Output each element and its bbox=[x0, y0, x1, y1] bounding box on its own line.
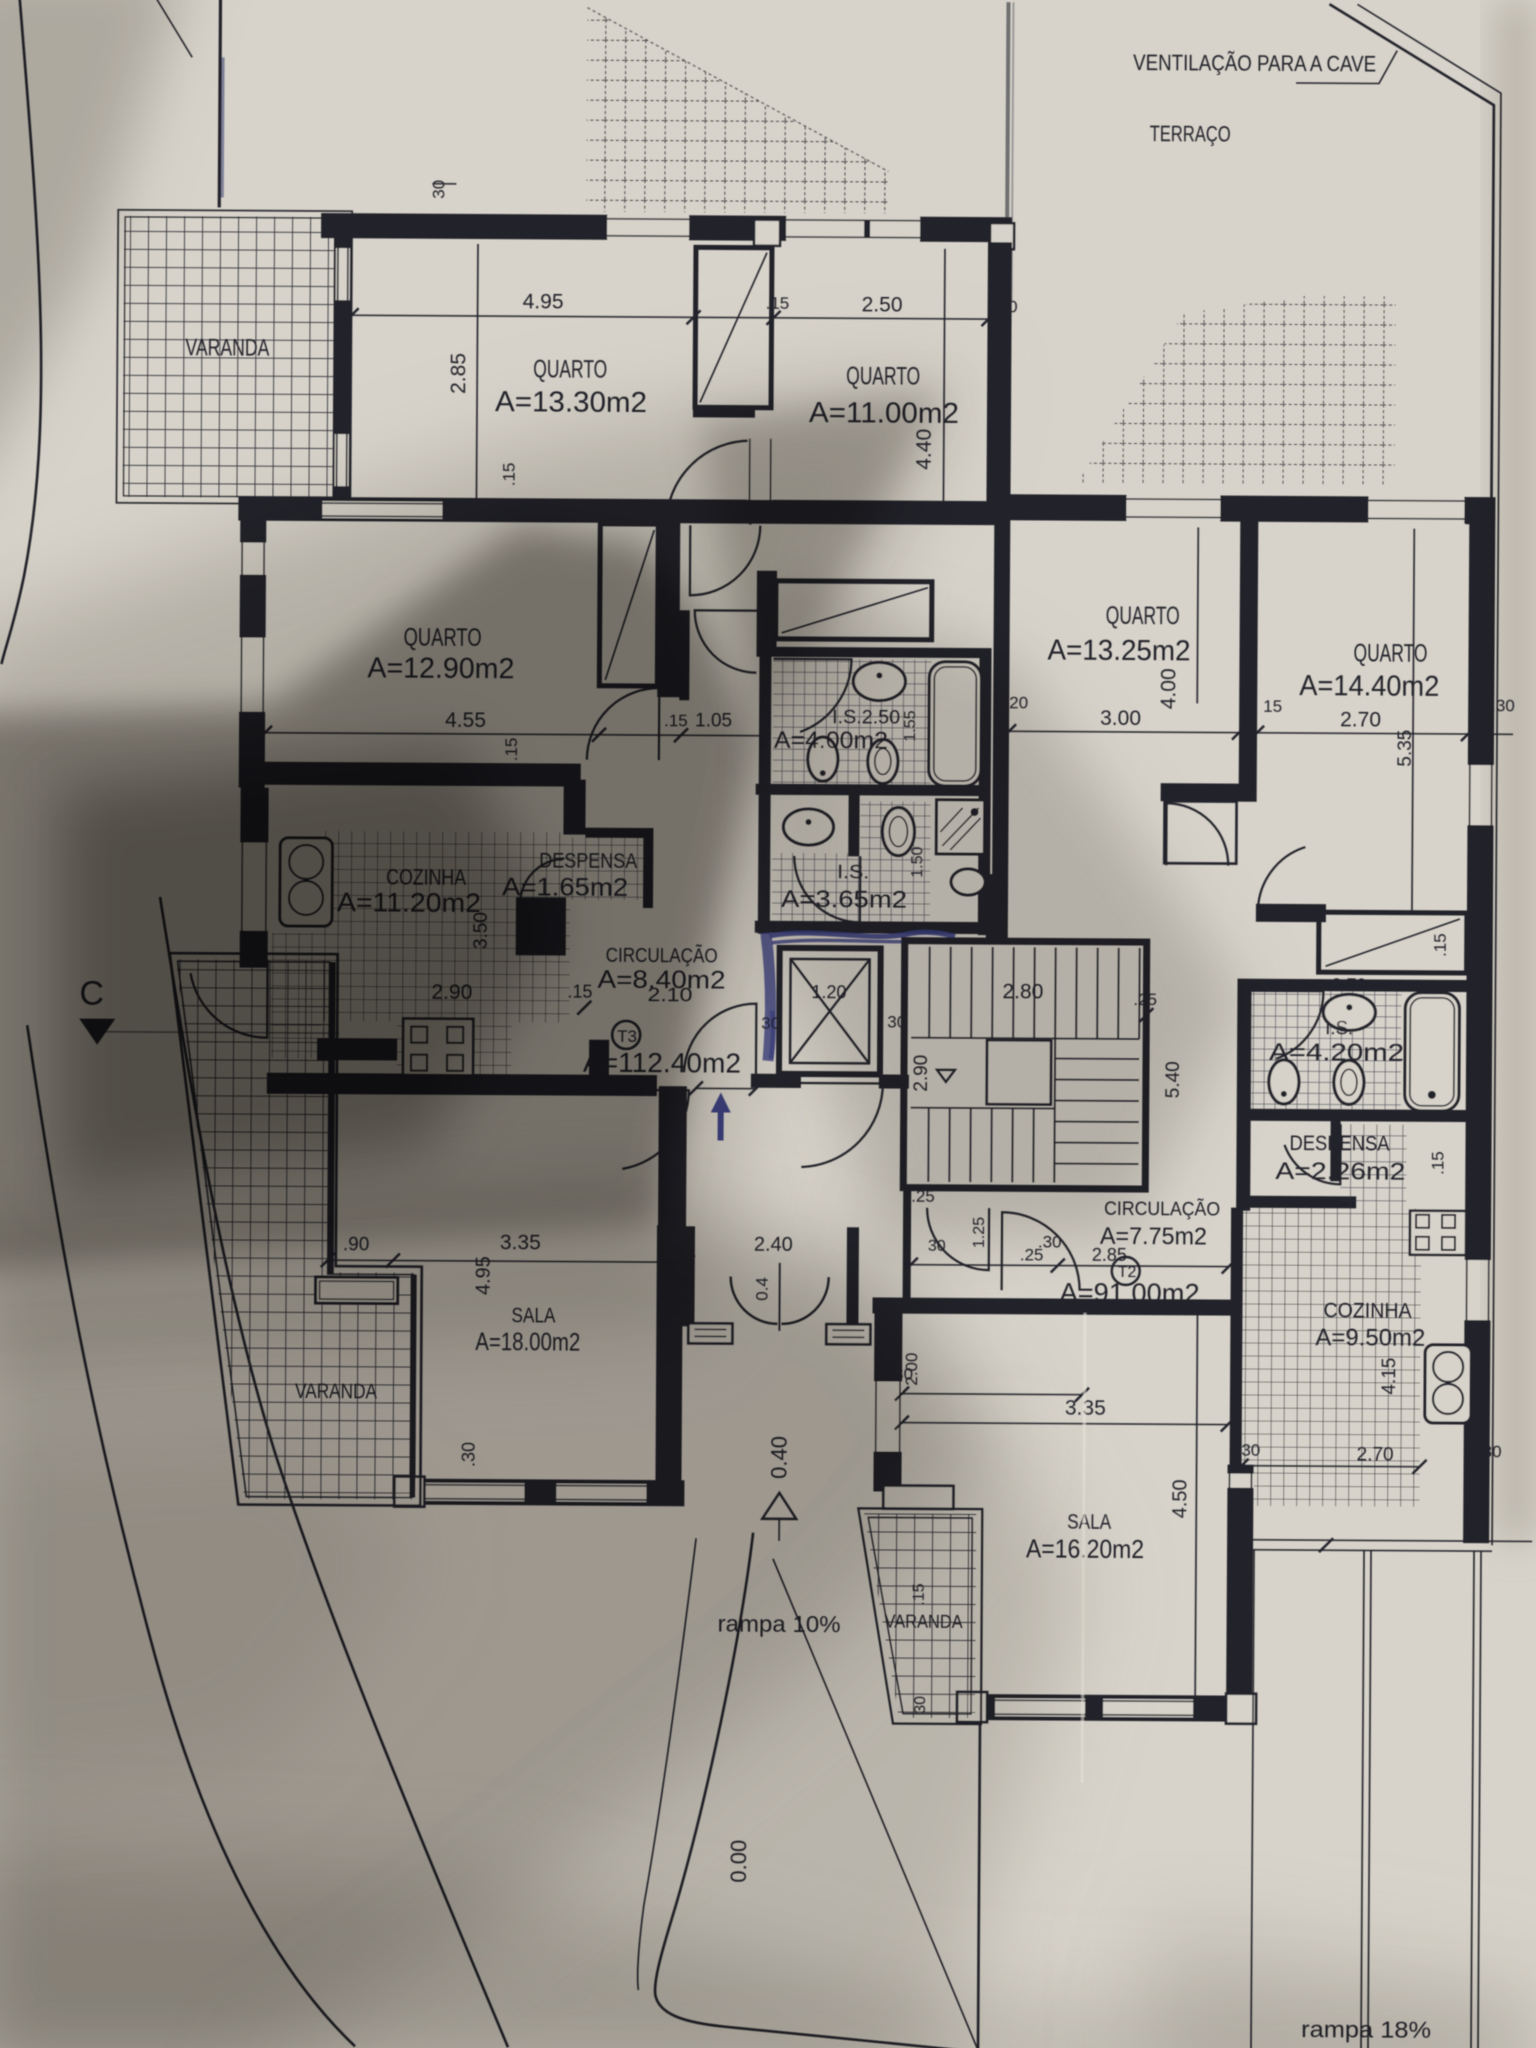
svg-text:2.85: 2.85 bbox=[447, 353, 470, 394]
svg-text:QUARTO: QUARTO bbox=[533, 355, 607, 383]
svg-text:A=13.30m2: A=13.30m2 bbox=[495, 386, 647, 419]
svg-text:TERRAÇO: TERRAÇO bbox=[1150, 121, 1231, 146]
svg-text:2.70: 2.70 bbox=[1331, 975, 1366, 995]
svg-text:2.70: 2.70 bbox=[1340, 708, 1381, 731]
svg-text:2.70: 2.70 bbox=[1357, 1444, 1394, 1465]
svg-text:4.95: 4.95 bbox=[523, 290, 564, 313]
svg-text:2.50: 2.50 bbox=[862, 293, 903, 316]
svg-text:A=9.50m2: A=9.50m2 bbox=[1315, 1324, 1425, 1352]
svg-text:4.15: 4.15 bbox=[1379, 1358, 1400, 1395]
svg-text:3.00: 3.00 bbox=[1100, 707, 1141, 730]
svg-text:4.00: 4.00 bbox=[1157, 668, 1180, 709]
svg-text:A=14.40m2: A=14.40m2 bbox=[1299, 670, 1439, 703]
svg-text:15: 15 bbox=[1263, 697, 1282, 716]
svg-text:SALA: SALA bbox=[1067, 1511, 1111, 1534]
svg-text:I.S.: I.S. bbox=[1325, 1018, 1353, 1039]
svg-text:QUARTO: QUARTO bbox=[1106, 602, 1180, 630]
svg-text:.15: .15 bbox=[1428, 1151, 1447, 1175]
svg-text:.30: .30 bbox=[1237, 1441, 1261, 1460]
svg-text:VARANDA: VARANDA bbox=[185, 334, 269, 362]
svg-text:2.85: 2.85 bbox=[1092, 1245, 1127, 1265]
svg-text:.15: .15 bbox=[1431, 933, 1450, 957]
svg-text:QUARTO: QUARTO bbox=[1353, 639, 1427, 667]
svg-text:A=13.25m2: A=13.25m2 bbox=[1047, 634, 1190, 667]
svg-text:.15: .15 bbox=[766, 294, 790, 313]
svg-text:30: 30 bbox=[429, 180, 448, 199]
svg-text:30: 30 bbox=[761, 1014, 780, 1033]
svg-text:VENTILAÇÃO PARA A CAVE: VENTILAÇÃO PARA A CAVE bbox=[1133, 50, 1376, 76]
svg-text:COZINHA: COZINHA bbox=[1323, 1299, 1411, 1323]
svg-text:4.50: 4.50 bbox=[1169, 1479, 1191, 1518]
